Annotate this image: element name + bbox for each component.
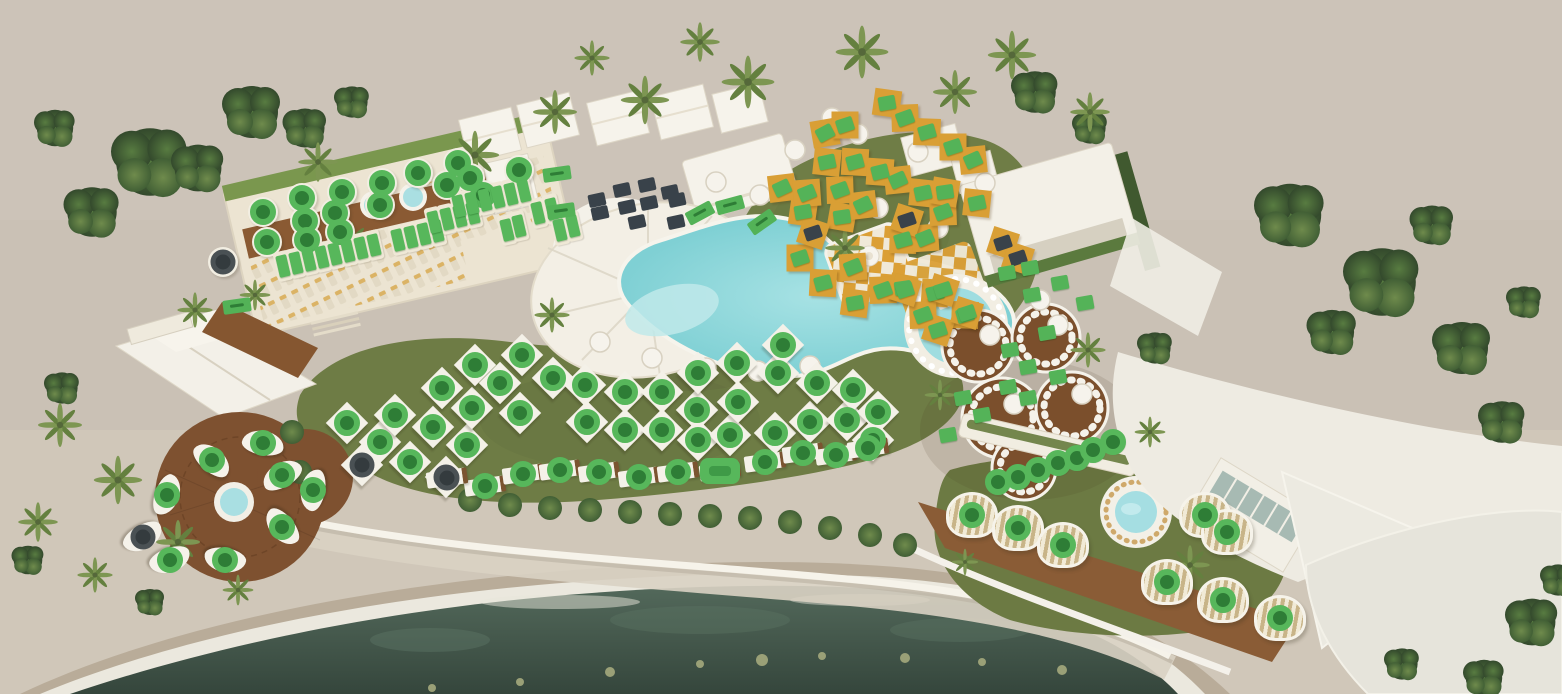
vip-booth-marker[interactable] xyxy=(953,390,972,407)
gold-daybed-marker[interactable] xyxy=(877,95,896,112)
garden-cabana-marker[interactable] xyxy=(1214,519,1240,545)
vip-booth-marker[interactable] xyxy=(1018,390,1037,407)
garden-daybed-marker[interactable] xyxy=(420,414,446,440)
garden-daybed-marker[interactable] xyxy=(770,332,796,358)
rooftop-terrace-table-marker[interactable] xyxy=(289,185,315,211)
garden-daybed-marker[interactable] xyxy=(462,352,488,378)
rooftop-terrace-table-marker[interactable] xyxy=(329,179,355,205)
garden-daybed-marker[interactable] xyxy=(454,432,480,458)
garden-cabana-marker[interactable] xyxy=(1192,502,1218,528)
garden-daybed-marker[interactable] xyxy=(334,410,360,436)
garden-daybed-marker[interactable] xyxy=(382,402,408,428)
garden-daybed-marker[interactable] xyxy=(612,379,638,405)
rooftop-terrace-table-marker[interactable] xyxy=(506,157,532,183)
rooftop-terrace-table-marker[interactable] xyxy=(250,199,276,225)
rooftop-table-booked-marker[interactable] xyxy=(211,250,236,275)
gold-daybed-marker[interactable] xyxy=(833,209,852,225)
front-row-booked-marker[interactable] xyxy=(435,466,460,491)
garden-daybed-marker[interactable] xyxy=(612,417,638,443)
gold-daybed-marker[interactable] xyxy=(793,204,812,221)
front-row-lounger-marker[interactable] xyxy=(855,435,881,461)
gold-daybed-marker[interactable] xyxy=(936,184,955,200)
garden-daybed-marker[interactable] xyxy=(509,342,535,368)
vip-booth-marker[interactable] xyxy=(1050,275,1069,292)
garden-daybed-marker[interactable] xyxy=(685,360,711,386)
front-row-lounger-marker[interactable] xyxy=(586,459,612,485)
garden-daybed-marker[interactable] xyxy=(367,429,393,455)
garden-daybed-marker[interactable] xyxy=(717,422,743,448)
garden-daybed-marker[interactable] xyxy=(649,417,675,443)
bar-seat-marker[interactable] xyxy=(1100,429,1126,455)
garden-cabana-marker[interactable] xyxy=(1267,605,1293,631)
front-row-premium-marker[interactable] xyxy=(700,458,740,484)
garden-daybed-marker[interactable] xyxy=(865,399,891,425)
front-row-lounger-marker[interactable] xyxy=(472,473,498,499)
front-row-lounger-marker[interactable] xyxy=(510,461,536,487)
garden-cabana-marker[interactable] xyxy=(1154,569,1180,595)
garden-daybed-marker[interactable] xyxy=(397,449,423,475)
garden-cabana-marker[interactable] xyxy=(1005,515,1031,541)
rooftop-terrace-table-marker[interactable] xyxy=(405,160,431,186)
garden-daybed-marker[interactable] xyxy=(572,372,598,398)
garden-daybed-marker[interactable] xyxy=(725,389,751,415)
vip-booth-marker[interactable] xyxy=(972,407,991,424)
vip-booth-marker[interactable] xyxy=(1048,369,1067,386)
garden-daybed-marker[interactable] xyxy=(429,375,455,401)
rooftop-terrace-table-marker[interactable] xyxy=(254,229,280,255)
front-row-lounger-marker[interactable] xyxy=(665,459,691,485)
garden-daybed-marker[interactable] xyxy=(684,397,710,423)
vip-booth-marker[interactable] xyxy=(938,427,957,444)
vip-booth-marker[interactable] xyxy=(1020,260,1039,277)
garden-daybed-marker[interactable] xyxy=(797,409,823,435)
garden-daybed-marker[interactable] xyxy=(507,400,533,426)
rooftop-terrace-table-marker[interactable] xyxy=(369,170,395,196)
garden-cabana-marker[interactable] xyxy=(959,502,985,528)
garden-daybed-marker[interactable] xyxy=(765,360,791,386)
vip-booth-marker[interactable] xyxy=(1022,287,1041,304)
garden-daybed-marker[interactable] xyxy=(540,365,566,391)
firepit-sofa-booked-marker[interactable] xyxy=(131,525,156,550)
garden-daybed-marker[interactable] xyxy=(840,377,866,403)
vip-booth-marker[interactable] xyxy=(997,265,1016,282)
vip-booth-marker[interactable] xyxy=(1000,342,1019,359)
vip-booth-marker[interactable] xyxy=(1037,325,1056,342)
front-row-lounger-marker[interactable] xyxy=(752,449,778,475)
garden-daybed-marker[interactable] xyxy=(574,409,600,435)
front-row-lounger-marker[interactable] xyxy=(823,442,849,468)
vip-booth-marker[interactable] xyxy=(998,379,1017,396)
garden-daybed-marker[interactable] xyxy=(649,379,675,405)
front-row-lounger-marker[interactable] xyxy=(626,464,652,490)
venue-map xyxy=(0,0,1562,694)
front-row-lounger-marker[interactable] xyxy=(547,457,573,483)
garden-daybed-marker[interactable] xyxy=(804,370,830,396)
front-row-lounger-marker[interactable] xyxy=(790,440,816,466)
garden-daybed-marker[interactable] xyxy=(724,350,750,376)
garden-cabana-marker[interactable] xyxy=(1210,587,1236,613)
garden-daybed-marker[interactable] xyxy=(834,407,860,433)
garden-daybed-booked-marker[interactable] xyxy=(350,453,375,478)
garden-cabana-marker[interactable] xyxy=(1050,532,1076,558)
garden-daybed-marker[interactable] xyxy=(487,370,513,396)
garden-daybed-marker[interactable] xyxy=(459,395,485,421)
gold-daybed-marker[interactable] xyxy=(845,295,864,312)
garden-daybed-marker[interactable] xyxy=(685,427,711,453)
garden-daybed-marker[interactable] xyxy=(762,420,788,446)
vip-booth-marker[interactable] xyxy=(1018,359,1037,376)
vip-booth-marker[interactable] xyxy=(1075,295,1094,312)
